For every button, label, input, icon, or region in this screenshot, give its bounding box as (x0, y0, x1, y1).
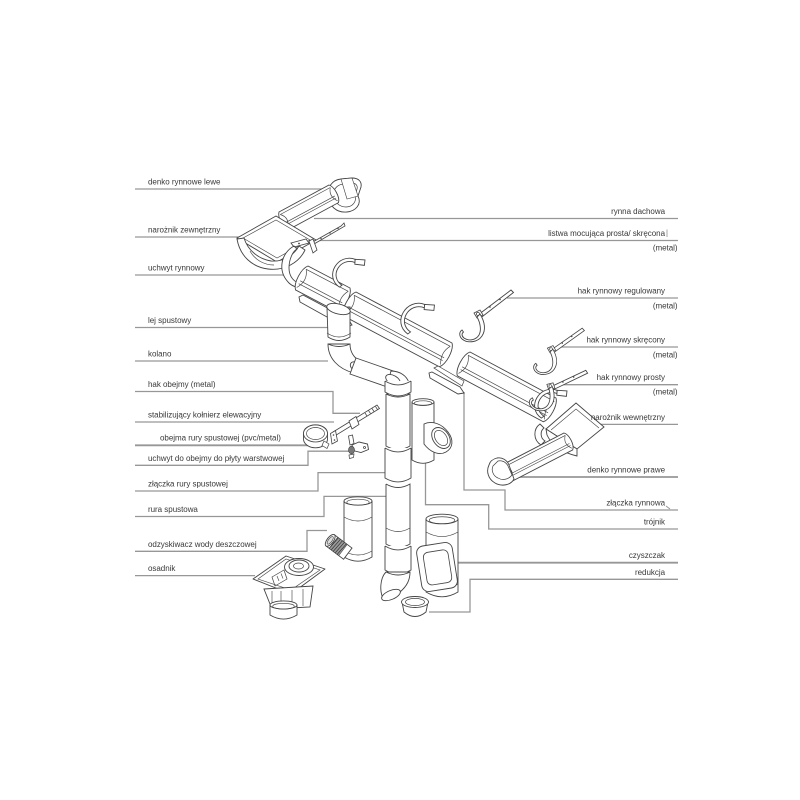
svg-text:hak rynnowy prosty: hak rynnowy prosty (597, 373, 665, 382)
svg-text:obejma rury spustowej (pvc/met: obejma rury spustowej (pvc/metal) (160, 434, 281, 443)
svg-text:redukcja: redukcja (635, 568, 666, 577)
svg-text:lej spustowy: lej spustowy (148, 316, 191, 325)
svg-text:trójnik: trójnik (644, 518, 666, 527)
svg-text:uchwyt do obejmy do płyty wars: uchwyt do obejmy do płyty warstwowej (148, 454, 285, 463)
svg-text:narożnik zewnętrzny: narożnik zewnętrzny (148, 226, 220, 235)
svg-text:uchwyt rynnowy: uchwyt rynnowy (148, 264, 205, 273)
svg-text:hak rynnowy regulowany: hak rynnowy regulowany (578, 287, 665, 296)
svg-text:listwa mocująca prosta/ skręco: listwa mocująca prosta/ skręcona (548, 229, 665, 238)
svg-text:narożnik wewnętrzny: narożnik wewnętrzny (591, 413, 665, 422)
svg-text:denko rynnowe lewe: denko rynnowe lewe (148, 178, 221, 187)
svg-text:(metal): (metal) (653, 388, 678, 397)
svg-text:złączka rynnowa: złączka rynnowa (606, 499, 665, 508)
svg-text:(metal): (metal) (653, 302, 678, 311)
svg-text:(metal): (metal) (653, 351, 678, 360)
svg-text:złączka rury spustowej: złączka rury spustowej (148, 480, 228, 489)
svg-text:rynna dachowa: rynna dachowa (611, 207, 665, 216)
svg-text:odzyskiwacz wody deszczowej: odzyskiwacz wody deszczowej (148, 540, 257, 549)
svg-text:czyszczak: czyszczak (629, 551, 666, 560)
svg-text:(metal): (metal) (653, 244, 678, 253)
svg-text:rura spustowa: rura spustowa (148, 505, 198, 514)
svg-text:stabilizujący kołnierz elewacy: stabilizujący kołnierz elewacyjny (148, 411, 261, 420)
svg-text:osadnik: osadnik (148, 564, 176, 573)
svg-text:hak rynnowy skręcony: hak rynnowy skręcony (586, 336, 665, 345)
svg-text:denko rynnowe prawe: denko rynnowe prawe (587, 466, 665, 475)
svg-text:kolano: kolano (148, 350, 172, 359)
svg-text:hak obejmy (metal): hak obejmy (metal) (148, 380, 216, 389)
